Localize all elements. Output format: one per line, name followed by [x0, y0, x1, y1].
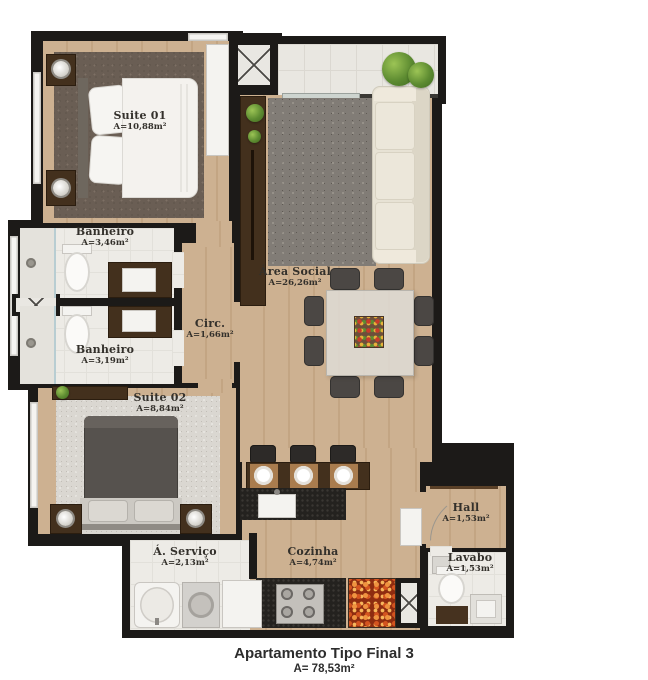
- fridge: [400, 508, 422, 546]
- suite01-duvet-folds: [180, 84, 192, 192]
- circ-floor: [182, 243, 234, 383]
- kitchen-sink: [258, 494, 296, 518]
- room-label-circ: Circ. A=1,66m²: [155, 318, 265, 340]
- sofa-cushion-2: [375, 152, 415, 200]
- dining-chair: [374, 268, 404, 290]
- stove-burner: [281, 588, 293, 600]
- room-area: A=1,53m²: [420, 515, 512, 525]
- door-opening-banheiro1: [172, 252, 184, 288]
- dining-chair: [330, 376, 360, 398]
- room-label-servico: Á. Serviço A=2,13m²: [128, 546, 242, 568]
- room-name: Área Social: [240, 266, 350, 279]
- room-area: A=3,19m²: [50, 357, 160, 367]
- suite01-lamp-top: [53, 61, 69, 77]
- lavabo-toilet-bowl: [438, 573, 465, 604]
- flower-planter-box: [348, 578, 396, 628]
- suite02-pillow-2: [134, 500, 174, 522]
- room-label-banheiro2: Banheiro A=3,19m²: [50, 344, 160, 366]
- room-name: Suite 02: [105, 392, 215, 405]
- room-label-lavabo: Lavabo A=1,53m²: [424, 552, 516, 574]
- shower-head-1: [26, 258, 36, 268]
- suite01-wardrobe: [206, 44, 229, 156]
- room-area: A=3,46m²: [50, 239, 160, 249]
- room-name: Cozinha: [258, 546, 368, 559]
- suite01-lamp-bottom: [53, 180, 69, 196]
- dining-chair: [414, 336, 434, 366]
- suite02-duvet-fold: [84, 416, 178, 428]
- room-name: Suite 01: [85, 110, 195, 123]
- window-suite01-left: [33, 72, 41, 184]
- room-label-area-social: Área Social A=26,26m²: [240, 266, 350, 288]
- suite01-headboard: [78, 78, 88, 198]
- dining-chair: [304, 336, 324, 366]
- vanity-sink-1: [122, 268, 156, 292]
- floor-plan: Suite 01 A=10,88m² Banheiro A=3,46m² Ban…: [0, 0, 648, 680]
- sideboard-plant-2: [248, 130, 261, 143]
- window-suite02-left: [30, 402, 38, 508]
- stove-burner: [303, 588, 315, 600]
- servico-cabinet: [222, 580, 262, 628]
- vanity-sink-2: [122, 310, 156, 332]
- dining-chair: [414, 296, 434, 326]
- window-suite01-top: [188, 33, 228, 41]
- sideboard-handle: [251, 150, 254, 260]
- plan-title-area: A= 78,53m²: [0, 663, 648, 675]
- shaft-box-top: [232, 39, 276, 91]
- room-name: Banheiro: [50, 344, 160, 357]
- plate: [254, 466, 273, 485]
- dining-chair: [304, 296, 324, 326]
- lavabo-sink: [476, 600, 496, 618]
- room-label-cozinha: Cozinha A=4,74m²: [258, 546, 368, 568]
- room-label-suite01: Suite 01 A=10,88m²: [85, 110, 195, 132]
- suite02-lamp-left: [58, 511, 73, 526]
- plan-title: Apartamento Tipo Final 3 A= 78,53m²: [0, 645, 648, 675]
- sofa-cushion-1: [375, 102, 415, 150]
- room-label-hall: Hall A=1,53m²: [420, 502, 512, 524]
- table-centerpiece-flowers: [354, 316, 384, 348]
- door-opening-suite01: [196, 221, 232, 247]
- shower-head-2: [26, 338, 36, 348]
- room-name: Hall: [420, 502, 512, 515]
- room-area: A=1,66m²: [155, 331, 265, 341]
- plate: [294, 466, 313, 485]
- suite02-headboard: [80, 524, 182, 530]
- living-room-rug: [268, 98, 376, 266]
- wall-servico-cozinha-stub: [249, 533, 257, 579]
- toilet-bowl-1: [64, 252, 90, 292]
- dining-chair: [374, 376, 404, 398]
- room-name: Circ.: [155, 318, 265, 331]
- sofa-cushion-3: [375, 202, 415, 250]
- room-area: A=26,26m²: [240, 279, 350, 289]
- room-area: A=8,84m²: [105, 405, 215, 415]
- suite02-bed-duvet: [84, 416, 178, 500]
- shaft-box-kitchen: [396, 578, 422, 628]
- sofa-armrest-top: [374, 88, 416, 101]
- stove-cooktop: [276, 584, 324, 624]
- suite02-lamp-right: [188, 511, 203, 526]
- room-label-suite02: Suite 02 A=8,84m²: [105, 392, 215, 414]
- room-name: Á. Serviço: [128, 546, 242, 559]
- sideboard-plant-1: [246, 104, 264, 122]
- room-name: Banheiro: [50, 226, 160, 239]
- door-opening-suite02: [198, 379, 232, 393]
- sofa: [372, 86, 430, 264]
- room-area: A=10,88m²: [85, 123, 195, 133]
- plate: [334, 466, 353, 485]
- room-name: Lavabo: [424, 552, 516, 565]
- washer-door: [188, 592, 214, 618]
- balcony-plant-small: [408, 62, 434, 88]
- suite02-plant: [56, 386, 69, 399]
- laundry-tub-faucet: [155, 618, 159, 625]
- room-area: A=2,13m²: [128, 559, 242, 569]
- suite02-pillow-1: [88, 500, 128, 522]
- room-label-banheiro1: Banheiro A=3,46m²: [50, 226, 160, 248]
- kitchen-faucet: [274, 489, 280, 495]
- sofa-armrest-bottom: [374, 250, 416, 263]
- stove-burner: [281, 606, 293, 618]
- stove-burner: [303, 606, 315, 618]
- room-area: A=1,53m²: [424, 565, 516, 575]
- room-area: A=4,74m²: [258, 559, 368, 569]
- plan-title-name: Apartamento Tipo Final 3: [0, 645, 648, 663]
- lavabo-floor-mat: [436, 606, 468, 624]
